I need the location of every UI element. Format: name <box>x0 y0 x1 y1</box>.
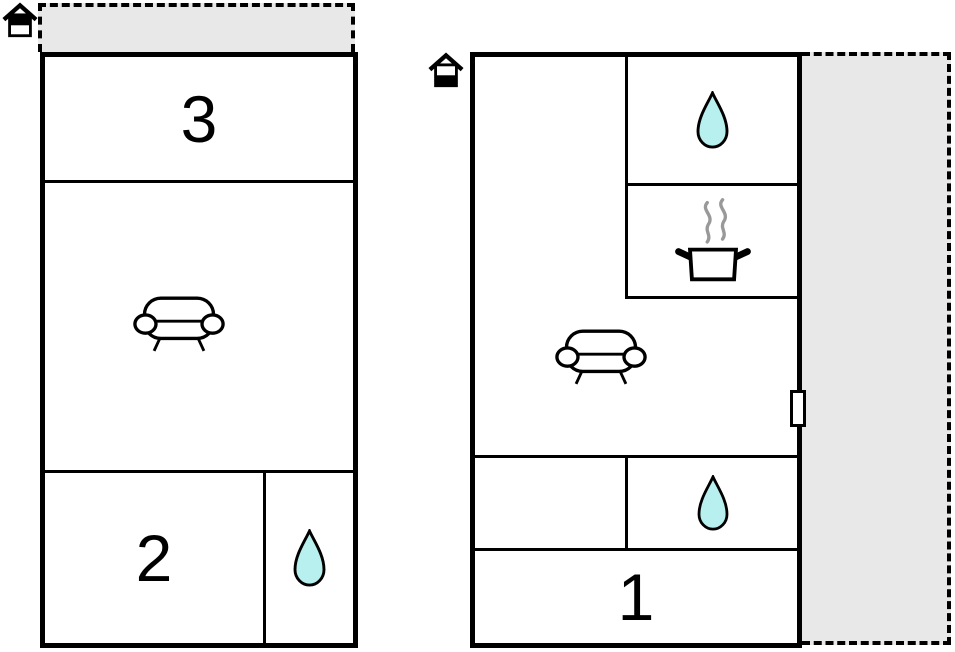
building-right-unit: 1 <box>470 52 802 648</box>
water-drop-icon <box>695 91 730 149</box>
bathroom-bottom-right-unit <box>628 458 797 548</box>
room-3: 3 <box>45 57 353 180</box>
wall-divider <box>625 296 797 299</box>
sofa-icon <box>555 328 647 388</box>
upper-floor-house-icon <box>2 2 38 41</box>
bathroom-left-unit <box>266 473 353 643</box>
room-1: 1 <box>475 551 797 643</box>
room-number-2: 2 <box>136 525 173 591</box>
bathroom-top-right-unit <box>628 57 797 183</box>
door-marker <box>790 390 806 427</box>
hall-right-unit <box>475 458 625 548</box>
cooking-pot-icon <box>667 196 759 286</box>
building-left-unit: 3 2 <box>40 52 358 648</box>
kitchen-right-unit <box>628 186 797 296</box>
water-drop-icon <box>292 529 327 587</box>
floor-plan-canvas: 3 2 <box>0 0 955 652</box>
terrace-right-unit <box>802 52 951 645</box>
terrace-left-unit <box>38 3 355 52</box>
water-drop-icon <box>696 475 730 531</box>
ground-floor-house-icon <box>428 52 464 91</box>
sofa-icon <box>133 295 225 355</box>
room-2: 2 <box>45 473 263 643</box>
room-number-3: 3 <box>181 86 218 152</box>
room-number-1: 1 <box>618 564 655 630</box>
wall-divider <box>45 180 353 183</box>
